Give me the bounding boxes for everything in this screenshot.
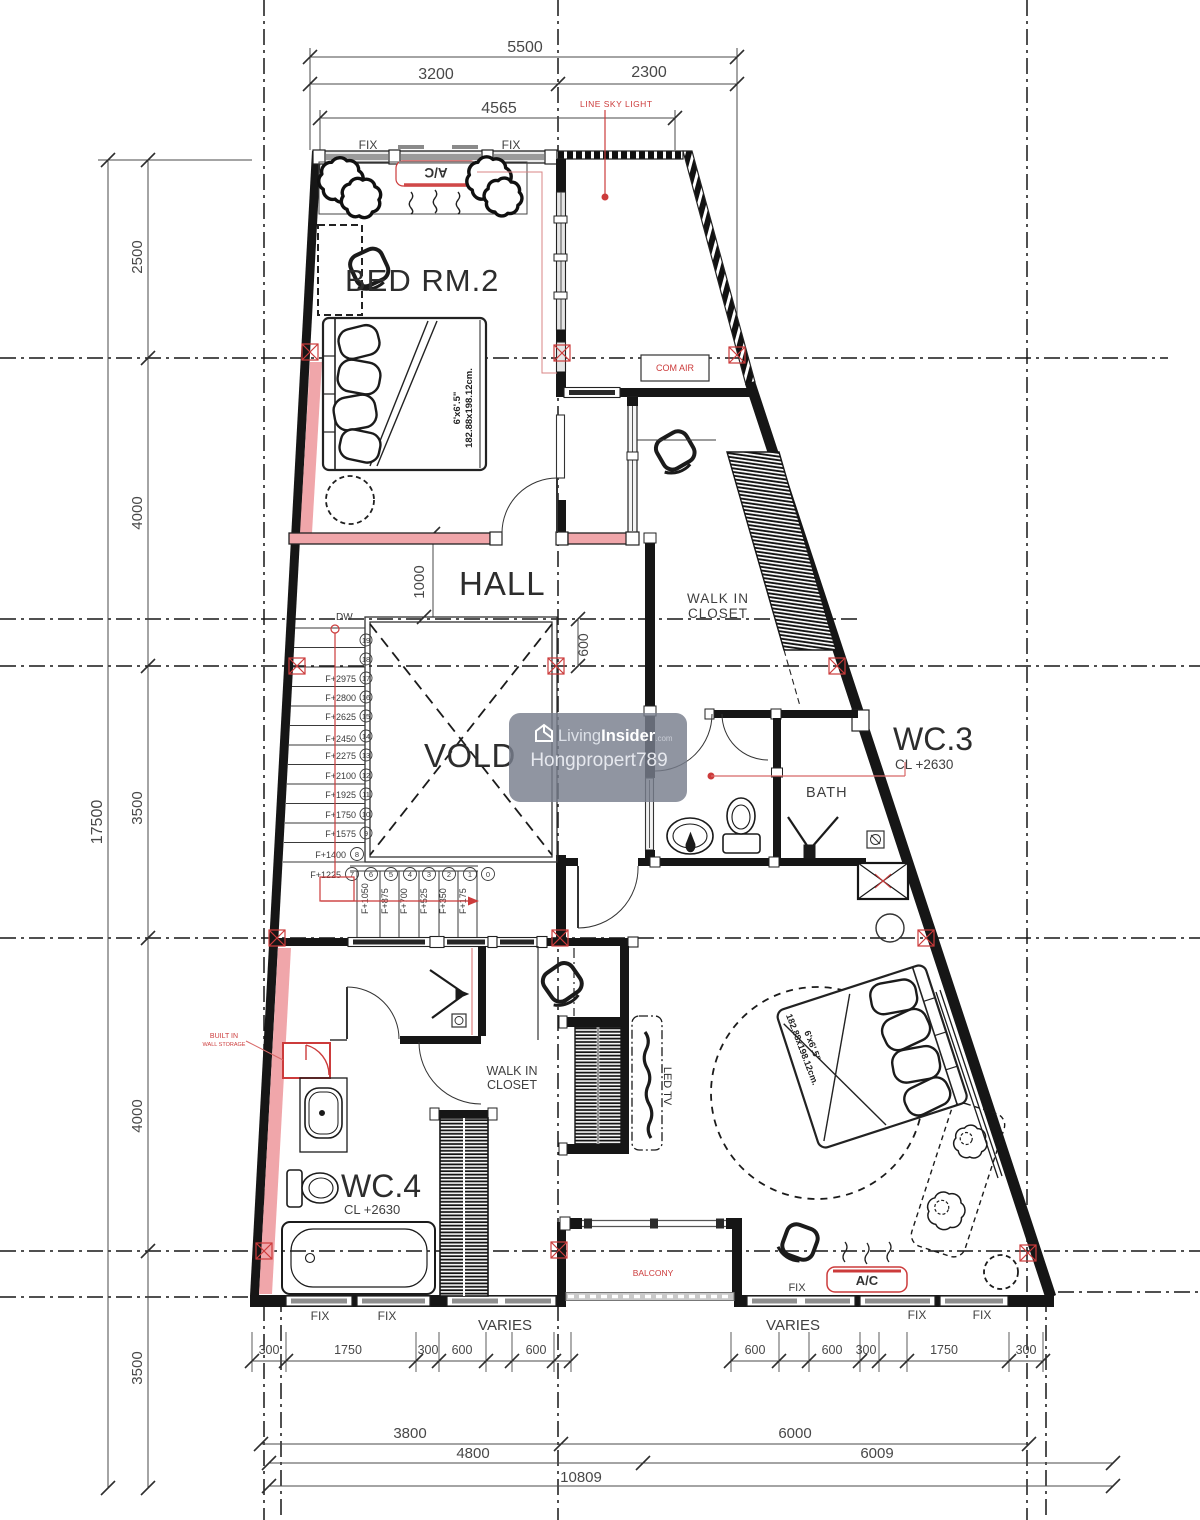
svg-text:300: 300 [259, 1343, 280, 1357]
svg-text:BED RM.2: BED RM.2 [345, 263, 499, 298]
svg-text:VARIES: VARIES [478, 1317, 532, 1334]
svg-text:VARIES: VARIES [766, 1317, 820, 1334]
svg-text:FIX: FIX [973, 1308, 992, 1322]
svg-text:300: 300 [856, 1343, 877, 1357]
svg-text:COM AIR: COM AIR [656, 363, 695, 373]
svg-text:F+1925: F+1925 [325, 790, 356, 800]
svg-text:600: 600 [452, 1343, 473, 1357]
svg-text:DW: DW [336, 612, 353, 623]
svg-text:BALCONY: BALCONY [633, 1268, 674, 1278]
svg-text:Hongpropert789: Hongpropert789 [530, 750, 667, 771]
svg-text:WALL STORAGE: WALL STORAGE [203, 1042, 246, 1048]
svg-text:3: 3 [427, 870, 431, 879]
svg-text:17: 17 [362, 674, 370, 683]
svg-text:6000: 6000 [778, 1425, 811, 1442]
svg-text:FIX: FIX [502, 138, 521, 152]
svg-text:FIX: FIX [378, 1309, 397, 1323]
svg-text:300: 300 [418, 1343, 439, 1357]
svg-text:F+1400: F+1400 [315, 850, 346, 860]
svg-text:300: 300 [1016, 1343, 1037, 1357]
svg-text:FIX: FIX [359, 138, 378, 152]
svg-text:F+1225: F+1225 [310, 870, 341, 880]
svg-text:VOLD: VOLD [424, 737, 516, 774]
svg-text:F+1050: F+1050 [360, 883, 370, 914]
svg-text:13: 13 [362, 751, 370, 760]
svg-text:9: 9 [364, 829, 368, 838]
svg-text:0: 0 [486, 870, 490, 879]
svg-text:A/C: A/C [424, 165, 448, 180]
svg-text:2300: 2300 [631, 64, 667, 81]
svg-text:2500: 2500 [129, 240, 146, 273]
svg-text:11: 11 [362, 790, 370, 799]
svg-text:F+2625: F+2625 [325, 712, 356, 722]
svg-text:15: 15 [362, 712, 370, 721]
svg-text:18: 18 [362, 655, 370, 664]
svg-text:1: 1 [468, 870, 472, 879]
svg-text:4000: 4000 [129, 496, 146, 529]
svg-text:CL +2630: CL +2630 [895, 757, 953, 772]
svg-text:1750: 1750 [930, 1343, 958, 1357]
svg-text:F+2275: F+2275 [325, 751, 356, 761]
svg-text:WALK IN: WALK IN [687, 591, 749, 606]
svg-text:CLOSET: CLOSET [487, 1078, 537, 1092]
svg-text:WC.4: WC.4 [341, 1168, 421, 1204]
svg-text:4000: 4000 [129, 1099, 146, 1132]
svg-text:BUILT IN: BUILT IN [210, 1033, 238, 1040]
svg-text:4800: 4800 [456, 1445, 489, 1462]
svg-text:CL +2630: CL +2630 [344, 1202, 400, 1217]
svg-text:3200: 3200 [418, 66, 454, 83]
svg-text:LINE SKY LIGHT: LINE SKY LIGHT [580, 99, 653, 109]
svg-text:10809: 10809 [560, 1469, 602, 1486]
svg-text:10: 10 [362, 810, 370, 819]
svg-text:600: 600 [822, 1343, 843, 1357]
svg-text:6: 6 [369, 870, 373, 879]
svg-text:4: 4 [408, 870, 412, 879]
svg-text:19: 19 [362, 636, 370, 645]
svg-text:FIX: FIX [311, 1309, 330, 1323]
svg-text:17500: 17500 [89, 800, 106, 845]
svg-text:HALL: HALL [459, 565, 546, 602]
svg-text:4565: 4565 [481, 100, 517, 117]
svg-text:600: 600 [745, 1343, 766, 1357]
svg-text:8: 8 [355, 850, 359, 859]
svg-text:5500: 5500 [507, 39, 543, 56]
svg-text:12: 12 [362, 771, 370, 780]
svg-text:CLOSET: CLOSET [688, 606, 748, 621]
svg-text:F+2975: F+2975 [325, 674, 356, 684]
svg-text:3800: 3800 [393, 1425, 426, 1442]
svg-text:6009: 6009 [860, 1445, 893, 1462]
svg-text:F+1575: F+1575 [325, 829, 356, 839]
svg-text:1750: 1750 [334, 1343, 362, 1357]
svg-text:14: 14 [362, 732, 370, 741]
svg-text:FIX: FIX [788, 1282, 806, 1294]
svg-text:F+1750: F+1750 [325, 810, 356, 820]
svg-text:F+2100: F+2100 [325, 771, 356, 781]
svg-text:F+2800: F+2800 [325, 693, 356, 703]
svg-text:16: 16 [362, 693, 370, 702]
svg-text:5: 5 [389, 870, 393, 879]
svg-text:LED TV: LED TV [661, 1067, 673, 1106]
svg-text:FIX: FIX [908, 1308, 927, 1322]
svg-text:182.88x198.12cm.: 182.88x198.12cm. [464, 368, 475, 448]
svg-text:WALK IN: WALK IN [487, 1064, 538, 1078]
svg-text:2: 2 [447, 870, 451, 879]
svg-text:A/C: A/C [856, 1273, 879, 1288]
svg-text:3500: 3500 [129, 791, 146, 824]
svg-text:F+2450: F+2450 [325, 734, 356, 744]
svg-text:WC.3: WC.3 [893, 721, 973, 757]
svg-text:3500: 3500 [129, 1351, 146, 1384]
svg-text:1000: 1000 [411, 565, 428, 598]
svg-text:600: 600 [575, 633, 591, 657]
svg-text:BATH: BATH [806, 785, 848, 801]
svg-text:6'x6'.5": 6'x6'.5" [452, 392, 463, 425]
svg-text:600: 600 [526, 1343, 547, 1357]
